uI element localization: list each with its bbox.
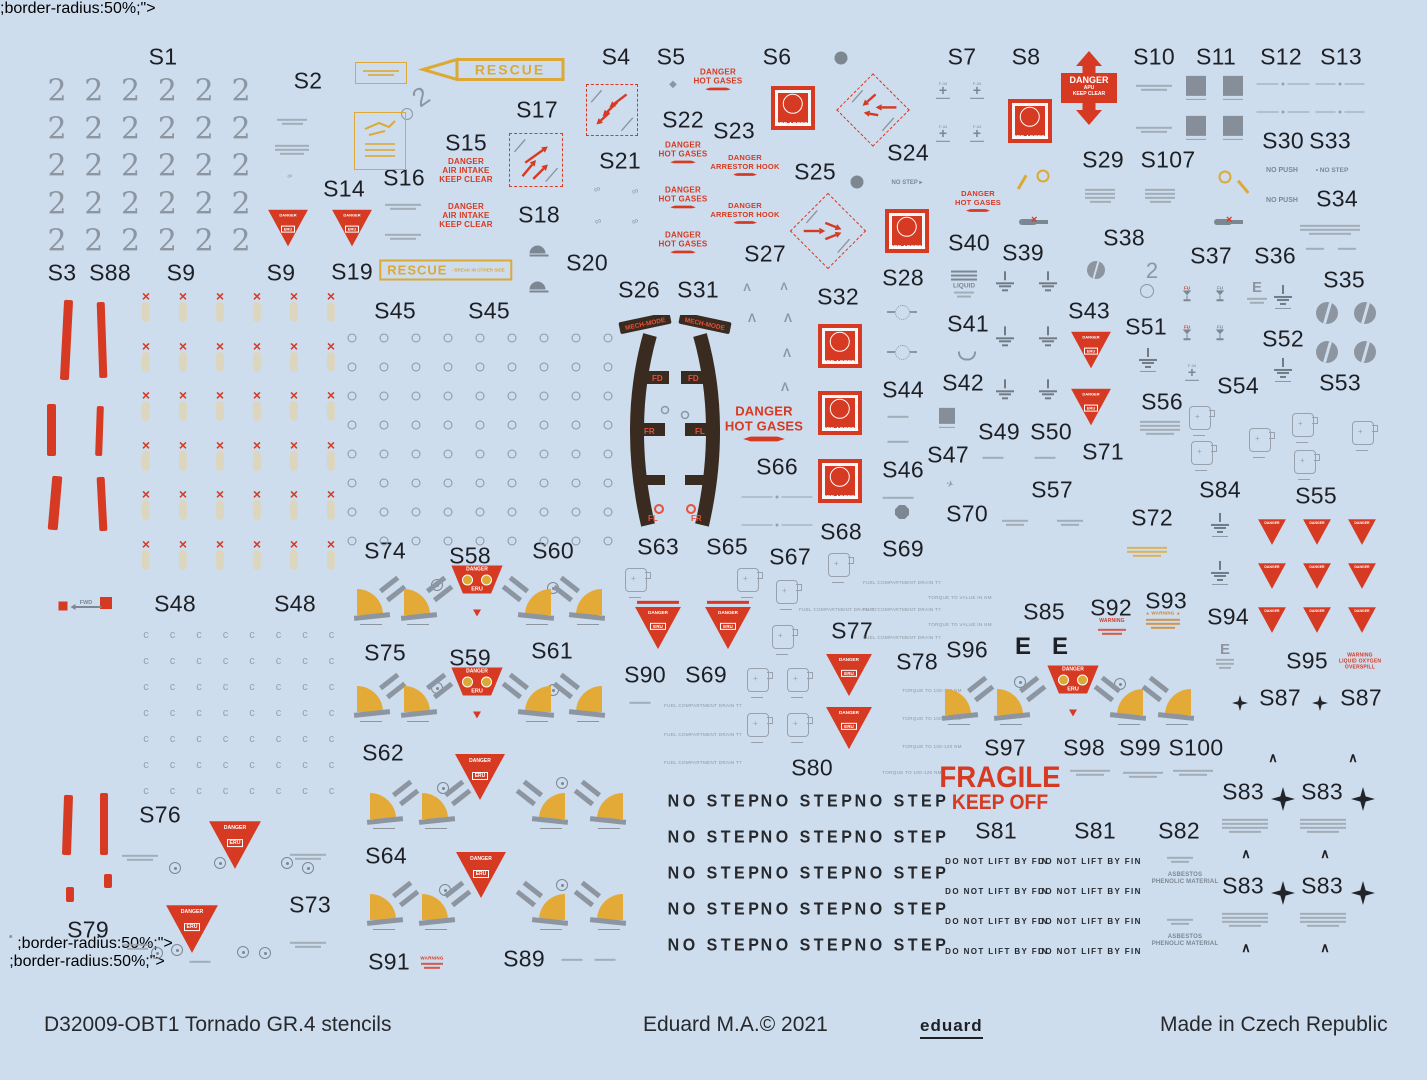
danger-text-decal: DANGERAIR INTAKEKEEP CLEAR (439, 202, 492, 230)
decal-id-label: S23 (713, 118, 755, 145)
decal-id-label: S3 (48, 260, 77, 287)
c-mark-decal: c (196, 729, 202, 747)
glyph-decal: Λ (743, 278, 750, 296)
decal-id-label: S69 (882, 536, 924, 563)
red-x-fastener-decal: × (327, 290, 335, 322)
chock-wedge-decal (399, 677, 455, 723)
dot-decal (508, 450, 517, 459)
decal-id-label: S22 (662, 107, 704, 134)
micro-text-lines (888, 439, 909, 445)
red-x-fastener-decal: × (253, 488, 261, 520)
do-not-lift-stencil: DO NOT LIFT BY FIN (945, 881, 1049, 899)
do-not-lift-stencil: DO NOT LIFT BY FIN (945, 941, 1049, 959)
c-mark-decal: c (223, 651, 229, 669)
decal-id-label: S39 (1002, 240, 1044, 267)
decal-id-label: S51 (1125, 314, 1167, 341)
c-mark-decal: c (249, 677, 255, 695)
decal-id-label: S55 (1295, 483, 1337, 510)
dot-decal (604, 421, 613, 430)
danger-eru-triangle-decal: DANGERERU (826, 654, 872, 696)
chock-wedge-decal (551, 580, 607, 626)
dot-decal (476, 363, 485, 372)
numeral-2-decal: 2 (121, 74, 140, 109)
c-mark-decal: c (249, 703, 255, 721)
danger-text-decal: ASBESTOSPHENOLIC MATERIAL (1152, 872, 1219, 886)
ground-symbol-decal (1274, 285, 1292, 309)
numeral-2-decal: 2 (84, 149, 103, 184)
dot-decal (348, 421, 357, 430)
tank-outline-icon: + (776, 580, 798, 604)
micro-text-lines (595, 957, 616, 963)
numeral-2-decal: 2 (231, 224, 250, 259)
fire-access-decal: FIRE ACCESS (771, 86, 815, 130)
tank-outline-icon: + (747, 668, 769, 692)
decal-id-label: S25 (794, 159, 836, 186)
numeral-2-decal: 2 (121, 186, 140, 221)
no-step-stencil: NO STEP (761, 792, 856, 812)
do-not-lift-stencil: DO NOT LIFT BY FIN (1038, 911, 1142, 929)
dot-decal (476, 334, 485, 343)
gray-dot-mark (835, 52, 848, 65)
glyph-decal: E (1052, 633, 1068, 661)
dot-decal (604, 392, 613, 401)
micro-text-lines (1216, 657, 1234, 671)
roundel-mark (259, 947, 271, 959)
dot-decal (412, 421, 421, 430)
dot-decal (380, 479, 389, 488)
c-mark-decal: c (196, 677, 202, 695)
glyph-decal: E (1252, 279, 1262, 297)
red-x-fastener-decal: × (290, 488, 298, 520)
crossed-tool-mark: × (1019, 216, 1051, 228)
decal-id-label: S89 (503, 946, 545, 973)
decal-id-label: S71 (1082, 439, 1124, 466)
dot-decal (508, 479, 517, 488)
micro-text-decal: TORQUE TO VALUE IN NM (928, 613, 992, 631)
c-mark-decal: c (329, 755, 335, 773)
numeral-2-decal: 2 (195, 224, 214, 259)
dot-decal (572, 537, 581, 546)
decal-id-label: S53 (1319, 370, 1361, 397)
chock-wedge-decal (399, 580, 455, 626)
danger-eru-triangle-decal: DANGERERU (1071, 389, 1111, 426)
c-mark-decal: c (143, 755, 149, 773)
dot-decal (604, 537, 613, 546)
decal-id-label: S81 (975, 818, 1017, 845)
f34-cross-mark: F-34+ (970, 124, 984, 142)
micro-text-lines (385, 232, 421, 242)
decal-id-label: S69 (685, 662, 727, 689)
micro-text-lines (983, 455, 1004, 461)
numeral-2-decal: 2 (195, 74, 214, 109)
do-not-lift-stencil: DO NOT LIFT BY FIN (1038, 881, 1142, 899)
decal-id-label: S41 (947, 311, 989, 338)
decal-id-label: S90 (624, 662, 666, 689)
red-x-fastener-decal: × (179, 439, 187, 471)
decal-id-label: S87 (1340, 685, 1382, 712)
c-mark-decal: c (143, 677, 149, 695)
decal-id-label: S75 (364, 640, 406, 667)
chock-wedge-decal (514, 784, 570, 830)
dot-decal (412, 392, 421, 401)
decal-id-label: S13 (1320, 44, 1362, 71)
no-step-stencil: NO STEP (668, 900, 763, 920)
micro-text-lines (883, 495, 914, 501)
dot-decal (348, 508, 357, 517)
star-mark-decal (1351, 881, 1375, 905)
roundel-mark (237, 946, 249, 958)
numeral-2-decal: 2 (121, 149, 140, 184)
micro-text-lines (1123, 770, 1163, 780)
dot-decal (348, 363, 357, 372)
star-mark-decal (1312, 695, 1328, 711)
c-mark-decal: c (223, 729, 229, 747)
dot-decal (572, 392, 581, 401)
numeral-2-decal: 2 (158, 149, 177, 184)
numeral-2-decal: 2 (84, 224, 103, 259)
decal-id-label: S9 (267, 260, 296, 287)
decal-id-label: S18 (518, 202, 560, 229)
dot-decal (508, 537, 517, 546)
red-x-fastener-decal: × (290, 538, 298, 570)
decal-id-label: S46 (882, 457, 924, 484)
split-circle-mark (1087, 261, 1105, 279)
glyph-decal: ∧ (1241, 845, 1251, 863)
micro-text-lines (630, 700, 651, 706)
fire-access-decal: FIRE ACCESS (818, 324, 862, 368)
micro-text-lines (122, 853, 158, 863)
danger-text-decal: DANGERHOT GASES (659, 140, 708, 163)
c-mark-decal: c (170, 677, 176, 695)
tank-outline-icon: + (1294, 450, 1316, 474)
gray-square-mark (939, 408, 955, 428)
no-step-stencil: NO STEP (761, 900, 856, 920)
decal-id-label: S49 (978, 419, 1020, 446)
micro-text-lines (1173, 768, 1213, 778)
crossed-tool-mark: × (1214, 216, 1246, 228)
yellow-mark (1021, 174, 1024, 190)
decal-id-label: S61 (531, 638, 573, 665)
numeral-2-decal: 2 (158, 111, 177, 146)
danger-eru-triangle-decal: DANGER (1258, 519, 1286, 545)
decal-id-label: S97 (984, 735, 1026, 762)
glyph-decal: Λ (781, 378, 789, 396)
danger-eru-triangle-decal: DANGER (1348, 519, 1376, 545)
roundel-mark (214, 857, 226, 869)
c-mark-decal: c (276, 781, 282, 799)
glyph-decal: ◆ (669, 74, 677, 92)
decal-id-label: S64 (365, 843, 407, 870)
no-step-stencil: NO STEP (855, 828, 950, 848)
roundel-mark (171, 944, 183, 956)
micro-text-lines (1070, 768, 1110, 778)
micro-text-lines (1222, 911, 1268, 929)
no-step-stencil: NO STEP (668, 828, 763, 848)
decal-id-label: S45 (374, 298, 416, 325)
dot-pair-mark: ;border-radius:50%;">;border-radius:50%;… (9, 935, 165, 971)
brand-logo: eduard (920, 1016, 983, 1039)
chock-wedge-decal (940, 680, 996, 726)
split-circle-mark (1316, 302, 1338, 324)
red-x-fastener-decal: × (216, 439, 224, 471)
svg-text:FD: FD (688, 374, 699, 383)
glyph-decal: ∧ (1320, 845, 1330, 863)
fu-mark: FU (1216, 285, 1225, 301)
svg-text:FD: FD (652, 374, 663, 383)
decal-id-label: S36 (1254, 243, 1296, 270)
numeral-2-decal: 2 (158, 74, 177, 109)
micro-text-lines (385, 202, 421, 212)
dot-decal (572, 450, 581, 459)
dot-decal (604, 363, 613, 372)
red-x-fastener-decal: × (179, 389, 187, 421)
dot-decal (476, 508, 485, 517)
decal-id-label: S21 (599, 148, 641, 175)
glyph-decal: Λ (783, 344, 791, 362)
rescue-arrow-decal: RESCUE (417, 56, 567, 89)
gray-dot-mark (895, 505, 909, 519)
fu-mark: FU (1183, 285, 1192, 301)
sheet-title: D32009-OBT1 Tornado GR.4 stencils (44, 1013, 391, 1037)
c-mark-decal: c (223, 755, 229, 773)
c-mark-decal: c (302, 625, 308, 643)
dash-line-mark (1316, 83, 1365, 86)
decal-id-label: S8 (1012, 44, 1041, 71)
gray-square-mark (1223, 76, 1243, 100)
roundel-mark (151, 947, 163, 959)
dot-decal (540, 363, 549, 372)
red-trim-stripe (47, 404, 56, 456)
decal-id-label: S98 (1063, 735, 1105, 762)
red-x-fastener-decal: × (327, 340, 335, 372)
danger-eru-triangle-decal: DANGER (1303, 519, 1331, 545)
decal-id-label: S35 (1323, 267, 1365, 294)
decal-id-label: S30 (1262, 128, 1304, 155)
dot-decal (508, 363, 517, 372)
micro-text-lines (1035, 455, 1056, 461)
decal-id-label: S33 (1309, 128, 1351, 155)
numeral-2-decal: 2 (195, 149, 214, 184)
glyph-decal: ✈ (946, 474, 954, 492)
danger-eru-triangle-decal: DANGER (1303, 563, 1331, 589)
c-mark-decal: c (223, 677, 229, 695)
decal-id-label: S5 (657, 44, 686, 71)
red-x-fastener-decal: × (327, 389, 335, 421)
c-mark-decal: c (196, 625, 202, 643)
red-x-fastener-decal: × (142, 439, 150, 471)
c-mark-decal: c (170, 729, 176, 747)
tank-outline-icon: + (1189, 406, 1211, 430)
decal-id-label: S24 (887, 140, 929, 167)
chock-wedge-decal (365, 885, 421, 931)
glyph-decal: Λ (780, 277, 787, 295)
micro-text-lines (1300, 911, 1346, 929)
decal-id-label: S1 (149, 44, 178, 71)
yellow-mark (1037, 170, 1050, 183)
c-mark-decal: c (302, 677, 308, 695)
dot-decal (476, 537, 485, 546)
no-step-stencil: NO STEP (855, 936, 950, 956)
c-mark-decal: c (196, 755, 202, 773)
numeral-2-decal: 2 (84, 74, 103, 109)
glyph-decal: ∧ (1320, 939, 1330, 957)
decal-id-label: S44 (882, 377, 924, 404)
micro-text-lines (1300, 223, 1360, 237)
chock-wedge-decal (572, 784, 628, 830)
danger-eru-triangle-decal: DANGER (1348, 607, 1376, 633)
red-x-fastener-decal: × (142, 340, 150, 372)
dome-mark (530, 246, 549, 257)
decal-id-label: S67 (769, 544, 811, 571)
micro-text-lines (1098, 627, 1126, 637)
decal-id-label: S40 (948, 230, 990, 257)
c-mark-decal: c (223, 625, 229, 643)
glyph-decal: ∧ (1241, 939, 1251, 957)
c-mark-decal: c (276, 755, 282, 773)
glyph-decal: NO STEP ▸ (892, 171, 923, 189)
red-x-fastener-decal: × (253, 538, 261, 570)
dot-decal (508, 421, 517, 430)
c-mark-decal: c (223, 781, 229, 799)
dashed-diamond-decal (801, 204, 855, 258)
micro-text-lines (1127, 545, 1167, 559)
decal-id-label: S87 (1259, 685, 1301, 712)
red-x-fastener-decal: × (290, 439, 298, 471)
decal-id-label: S78 (896, 649, 938, 676)
dot-decal (476, 392, 485, 401)
c-mark-decal: c (276, 703, 282, 721)
decal-id-label: S26 (618, 277, 660, 304)
glyph-decal: Λ (748, 309, 756, 327)
danger-text-decal: DANGERARRESTOR HOOK (710, 154, 779, 176)
star-mark-decal (1232, 695, 1248, 711)
c-mark-decal: c (170, 625, 176, 643)
red-x-fastener-decal: × (179, 488, 187, 520)
micro-text-lines (1002, 518, 1028, 528)
yellow-placard (355, 62, 407, 84)
micro-text-lines (290, 940, 326, 950)
red-x-fastener-decal: × (216, 340, 224, 372)
decal-id-label: S70 (946, 501, 988, 528)
dot-decal (348, 537, 357, 546)
decal-id-label: S84 (1199, 477, 1241, 504)
decal-id-label: S17 (516, 97, 558, 124)
dot-decal (412, 479, 421, 488)
dash-line-mark (1316, 111, 1365, 114)
no-step-stencil: NO STEP (761, 936, 856, 956)
dot-decal (540, 537, 549, 546)
dot-decal (412, 450, 421, 459)
decal-id-label: S42 (942, 370, 984, 397)
dash-line-mark (742, 496, 813, 499)
red-trim-stripe (66, 887, 74, 902)
micro-text-lines (277, 117, 307, 127)
danger-text-decal: ▲ WARNING ▲ (1145, 610, 1180, 615)
dot-decal (380, 450, 389, 459)
decal-id-label: S34 (1316, 186, 1358, 213)
chock-wedge-decal (500, 677, 556, 723)
glyph-decal: ∧ (1348, 749, 1358, 767)
decal-id-label: S7 (948, 44, 977, 71)
numeral-2-decal: 2 (47, 74, 66, 109)
mech-mode-scale-decal: MECH-MODEMECH-MODEFDFRFLFDFLFR (615, 315, 735, 538)
chock-wedge-decal (417, 885, 473, 931)
tank-outline-icon: + (1191, 441, 1213, 465)
decal-id-label: S73 (289, 892, 331, 919)
glyph-decal: ∧ (1268, 749, 1278, 767)
dot-decal (540, 392, 549, 401)
roundel-mark (302, 862, 314, 874)
star-mark-decal (1271, 787, 1295, 811)
glyph-decal: Λ (784, 309, 792, 327)
c-mark-decal: c (196, 651, 202, 669)
c-mark-decal: c (170, 781, 176, 799)
decal-id-label: S88 (89, 260, 131, 287)
dot-decal (444, 508, 453, 517)
micro-text-lines (275, 143, 309, 157)
red-trim-stripe (104, 874, 112, 888)
tank-outline-icon: + (1352, 421, 1374, 445)
c-mark-decal: c (276, 625, 282, 643)
no-step-stencil: NO STEP (855, 900, 950, 920)
chock-wedge-decal (1140, 680, 1196, 726)
danger-eru-triangle-decal: DANGER (1303, 607, 1331, 633)
tank-outline-icon: + (787, 713, 809, 737)
dot-decal (444, 450, 453, 459)
numeral-2-decal: 2 (195, 186, 214, 221)
tank-outline-icon: + (772, 625, 794, 649)
dot-decal (572, 334, 581, 343)
decal-layer: S1S2S4S5S6S7S8S10S11S12S13S17S15S22S23S2… (0, 0, 1427, 18)
fu-mark: FU (1183, 324, 1192, 340)
dashed-square-decal (509, 133, 563, 187)
numeral-2-decal: 2 (121, 224, 140, 259)
gray-square-mark (1186, 116, 1206, 140)
star-mark-decal (1351, 787, 1375, 811)
decal-id-label: S100 (1169, 735, 1224, 762)
c-mark-decal: c (143, 729, 149, 747)
dot-decal (572, 508, 581, 517)
c-mark-decal: c (170, 703, 176, 721)
numeral-2-decal: 2 (195, 111, 214, 146)
micro-text-lines (1247, 296, 1267, 306)
chock-wedge-decal (514, 885, 570, 931)
decal-id-label: S4 (602, 44, 631, 71)
fire-access-decal: FIRE ACCESS (885, 209, 929, 253)
dot-decal (380, 392, 389, 401)
decal-id-label: S83 (1301, 779, 1343, 806)
red-x-fastener-decal: × (327, 488, 335, 520)
decal-id-label: S48 (154, 591, 196, 618)
decal-id-label: S52 (1262, 326, 1304, 353)
f34-cross-mark: F-34+ (970, 81, 984, 99)
ground-symbol-decal (1039, 271, 1057, 292)
danger-eru-triangle-decal: DANGERERU (705, 601, 751, 649)
dot-decal (540, 508, 549, 517)
dial-mark (887, 344, 917, 360)
glyph-decal: ∞ (595, 211, 601, 229)
chock-wedge-decal (572, 885, 628, 931)
micro-text-lines (1338, 246, 1356, 252)
ground-symbol-decal (996, 379, 1014, 400)
red-x-fastener-decal: × (327, 439, 335, 471)
red-trim-stripe (60, 300, 73, 380)
decal-id-label: S68 (820, 519, 862, 546)
c-mark-decal: c (170, 755, 176, 773)
ground-symbol-decal (1039, 379, 1057, 400)
c-mark-decal: c (249, 755, 255, 773)
ground-symbol-decal (1211, 561, 1229, 585)
